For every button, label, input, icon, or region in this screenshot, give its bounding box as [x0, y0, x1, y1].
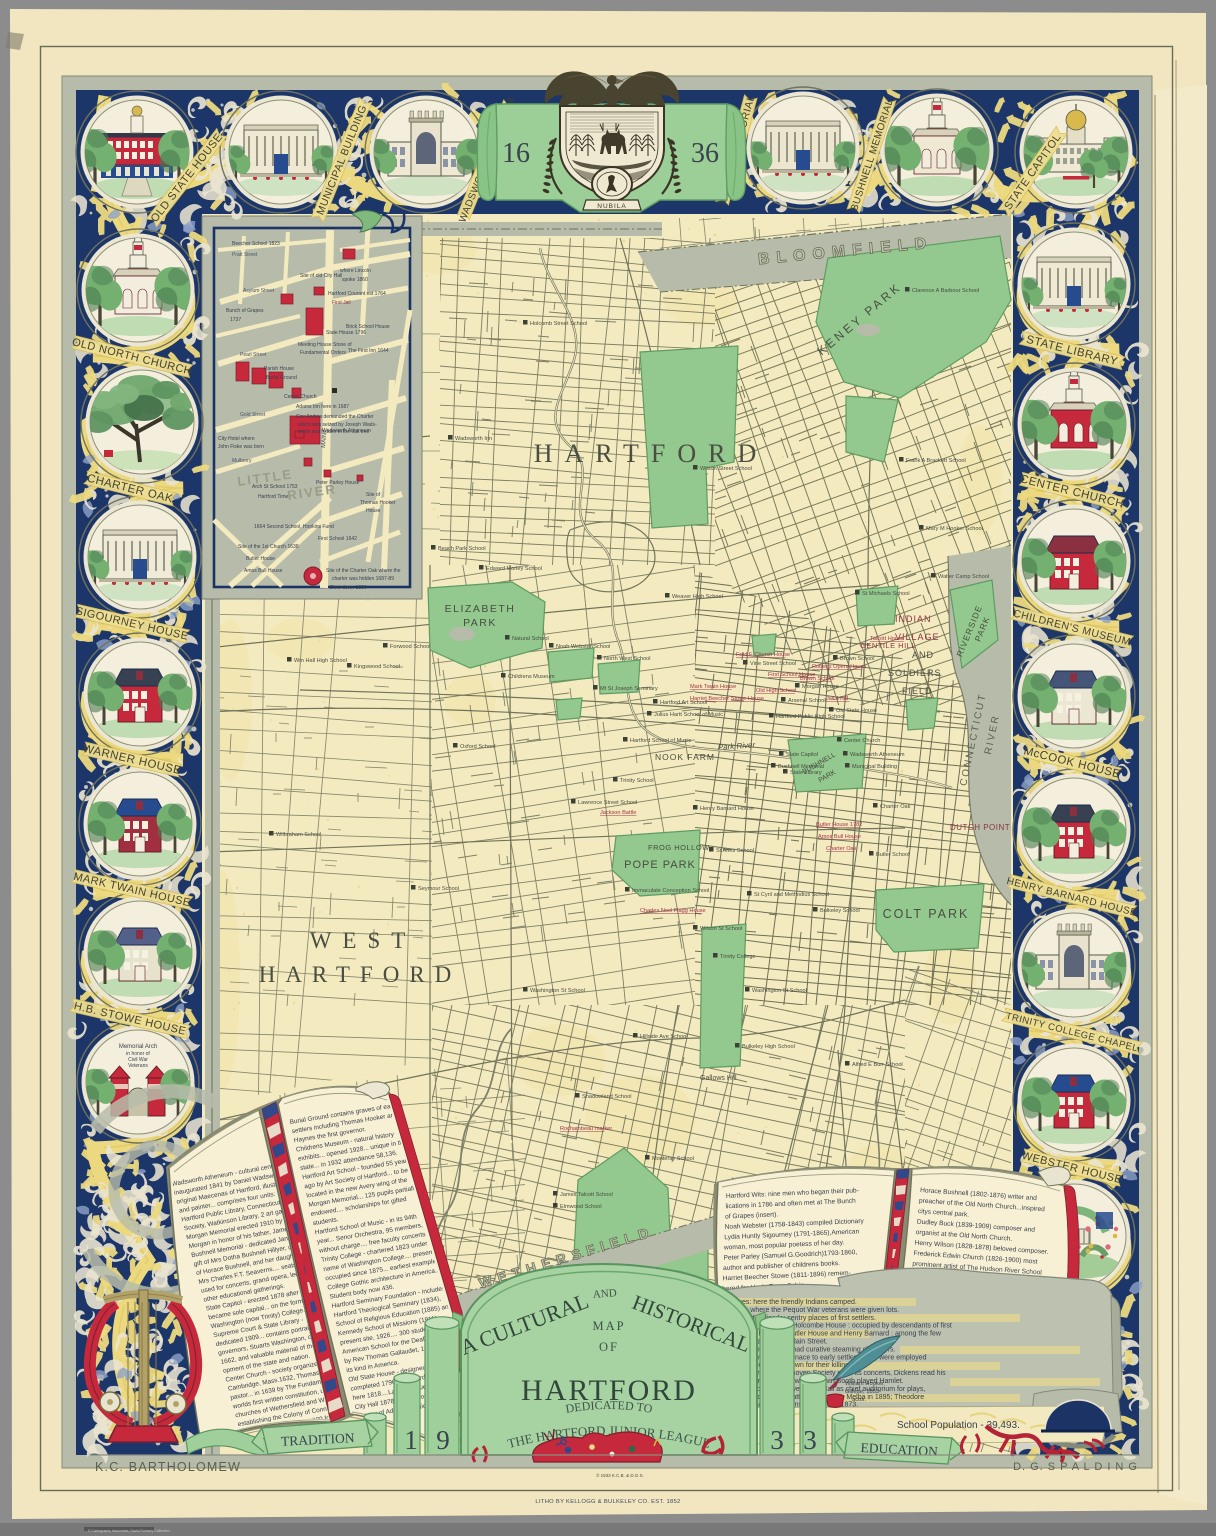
- svg-text:State Library: State Library: [790, 770, 822, 776]
- svg-text:Natural School: Natural School: [512, 636, 549, 642]
- svg-text:SOLDIERS: SOLDIERS: [888, 668, 942, 678]
- svg-text:FROG HOLLOW: FROG HOLLOW: [648, 843, 710, 852]
- svg-text:State Capitol: State Capitol: [786, 752, 818, 758]
- svg-text:Brown School: Brown School: [840, 656, 875, 662]
- svg-text:Beach Park School: Beach Park School: [438, 546, 486, 552]
- svg-text:Lawrence Street School: Lawrence Street School: [578, 800, 637, 806]
- svg-text:where Lincoln: where Lincoln: [340, 268, 371, 274]
- svg-text:Charles Noel Flagg House: Charles Noel Flagg House: [640, 908, 706, 914]
- svg-text:Oxford School: Oxford School: [460, 744, 495, 750]
- svg-text:Bulkeley High School: Bulkeley High School: [742, 1044, 795, 1050]
- svg-text:Fundamental Orders: Fundamental Orders: [300, 350, 346, 356]
- svg-text:Vine Street School: Vine Street School: [750, 661, 796, 667]
- svg-text:LITHO BY KELLOGG & BULKELE: LITHO BY KELLOGG & BULKELEY CO. EST. 185…: [535, 1499, 680, 1505]
- svg-text:1: 1: [404, 1425, 418, 1455]
- svg-text:3: 3: [803, 1425, 817, 1455]
- svg-text:First School 1642: First School 1642: [318, 536, 357, 542]
- svg-text:Morgan House: Morgan House: [802, 684, 839, 690]
- svg-text:First School House: First School House: [768, 672, 815, 678]
- svg-text:Rochambeau marker: Rochambeau marker: [560, 1126, 612, 1132]
- svg-text:House: House: [366, 508, 381, 514]
- svg-text:Julius Hartt School of Music: Julius Hartt School of Music: [654, 712, 723, 718]
- svg-text:Kingswood School: Kingswood School: [354, 664, 400, 670]
- svg-text:St Michaels School: St Michaels School: [862, 591, 910, 597]
- svg-text:Pearl Street: Pearl Street: [240, 352, 267, 358]
- svg-text:Old High School: Old High School: [756, 688, 796, 694]
- svg-text:Weaver High School: Weaver High School: [672, 594, 723, 600]
- svg-text:Trinity College: Trinity College: [720, 954, 756, 960]
- svg-text:© 1933 K.C.B. & D.G.S.: © 1933 K.C.B. & D.G.S.: [596, 1472, 644, 1478]
- svg-text:3: 3: [770, 1425, 784, 1455]
- svg-text:Blew down 1856: Blew down 1856: [330, 585, 367, 591]
- svg-text:Shadowland School: Shadowland School: [582, 1094, 631, 1100]
- svg-text:Municipal Building: Municipal Building: [852, 764, 897, 770]
- svg-text:Wilson St School: Wilson St School: [700, 926, 742, 932]
- svg-text:AND: AND: [592, 1287, 617, 1301]
- svg-text:Burial Ground: Burial Ground: [266, 375, 297, 381]
- svg-text:Adams Inn here in 1687: Adams Inn here in 1687: [296, 404, 349, 410]
- svg-text:Washington St School: Washington St School: [530, 988, 585, 994]
- svg-text:Center Church: Center Church: [284, 394, 317, 400]
- svg-text:The First Inn 1644: The First Inn 1644: [348, 348, 389, 354]
- svg-text:James Talcott School: James Talcott School: [560, 1192, 613, 1198]
- svg-text:Old State House: Old State House: [836, 708, 877, 714]
- svg-text:1737: 1737: [230, 317, 241, 323]
- svg-text:© Cartography Associates, Davi: © Cartography Associates, David Rumsey C…: [88, 1529, 170, 1533]
- svg-text:John Fiske was born: John Fiske was born: [218, 444, 264, 450]
- svg-text:Noah Webster School: Noah Webster School: [556, 644, 610, 650]
- svg-text:actor.: actor.: [852, 1397, 867, 1403]
- svg-text:Beecher School 1823: Beecher School 1823: [232, 241, 280, 247]
- svg-text:WEST: WEST: [310, 928, 417, 953]
- svg-text:Hartford Public High School: Hartford Public High School: [776, 714, 845, 720]
- svg-text:INDIAN: INDIAN: [895, 614, 932, 624]
- svg-text:Thomas Hooker: Thomas Hooker: [360, 500, 396, 506]
- svg-text:Bulkeley School: Bulkeley School: [820, 908, 860, 914]
- svg-text:Gallows Hill: Gallows Hill: [700, 1075, 737, 1082]
- svg-text:Gold Street: Gold Street: [240, 412, 266, 418]
- svg-text:Gov Andros demanded the Charte: Gov Andros demanded the Charter: [296, 414, 374, 420]
- svg-text:Charter Oak: Charter Oak: [880, 804, 911, 810]
- svg-text:Wm Hall High School: Wm Hall High School: [294, 658, 347, 664]
- svg-text:Holcomb Street School: Holcomb Street School: [530, 321, 587, 327]
- svg-text:POPE PARK: POPE PARK: [624, 859, 696, 871]
- svg-text:Harriet Beecher Stowe House: Harriet Beecher Stowe House: [690, 696, 764, 702]
- svg-text:Site of the 1st Church 1638: Site of the 1st Church 1638: [238, 544, 299, 550]
- svg-text:Butler House: Butler House: [246, 556, 275, 562]
- svg-text:City Hotel where: City Hotel where: [218, 436, 255, 442]
- svg-text:Washington St School: Washington St School: [752, 988, 807, 994]
- svg-text:Pratt Street: Pratt Street: [232, 252, 258, 258]
- svg-text:Butler House 1782: Butler House 1782: [816, 822, 862, 828]
- svg-text:First Jail: First Jail: [332, 300, 351, 306]
- svg-text:North West School: North West School: [604, 656, 651, 662]
- svg-text:MAP: MAP: [592, 1319, 625, 1333]
- svg-text:Mulberry: Mulberry: [232, 458, 252, 464]
- svg-text:Center Church: Center Church: [844, 738, 880, 744]
- svg-text:Amos Bull House: Amos Bull House: [818, 834, 861, 840]
- svg-text:DUTCH POINT: DUTCH POINT: [950, 823, 1010, 832]
- svg-text:Frank A Brackett School: Frank A Brackett School: [906, 458, 966, 464]
- svg-text:Wilbraham School: Wilbraham School: [276, 832, 321, 838]
- svg-text:Wadsworth Atheneum: Wadsworth Atheneum: [850, 752, 905, 758]
- svg-text:St Cyril and Methodius School: St Cyril and Methodius School: [754, 892, 829, 898]
- svg-text:Veterans: Veterans: [128, 1063, 148, 1069]
- svg-text:Roberts Opera House: Roberts Opera House: [812, 664, 866, 670]
- svg-text:36: 36: [691, 138, 719, 169]
- svg-text:Mt St Joseph Seminary: Mt St Joseph Seminary: [600, 686, 658, 692]
- svg-text:Talcott House: Talcott House: [870, 636, 904, 642]
- svg-text:NUBILA: NUBILA: [597, 203, 626, 210]
- svg-text:Jail 1793: Jail 1793: [826, 696, 848, 702]
- svg-text:Arsenal School: Arsenal School: [788, 698, 826, 704]
- svg-text:Walter Camp School: Walter Camp School: [938, 574, 989, 580]
- svg-text:HARTFORD: HARTFORD: [534, 439, 769, 468]
- svg-text:OF: OF: [599, 1340, 619, 1354]
- svg-text:School Population - 39,493.: School Population - 39,493.: [897, 1420, 1020, 1431]
- svg-text:NOOK FARM: NOOK FARM: [655, 752, 715, 762]
- svg-text:Asylum Street: Asylum Street: [243, 288, 275, 294]
- svg-text:Jackson Battle: Jackson Battle: [600, 810, 636, 816]
- svg-text:Immaculate Conception School: Immaculate Conception School: [632, 888, 709, 894]
- svg-text:Parish House: Parish House: [264, 366, 294, 372]
- svg-text:AND: AND: [912, 650, 934, 660]
- svg-text:COLT PARK: COLT PARK: [883, 907, 970, 921]
- svg-text:Elmwood School: Elmwood School: [560, 1204, 602, 1210]
- svg-text:Wadsworth Atheneum: Wadsworth Atheneum: [322, 428, 371, 434]
- svg-text:Clarence A Barbour School: Clarence A Barbour School: [912, 288, 979, 294]
- svg-text:William Hooker: William Hooker: [845, 1381, 884, 1387]
- svg-text:1664 Second School, Hopkins Fu: 1664 Second School, Hopkins Fund: [254, 524, 334, 530]
- svg-text:Site of old City Hall: Site of old City Hall: [300, 273, 342, 279]
- svg-text:Forwood School: Forwood School: [390, 644, 430, 650]
- svg-text:Meeting House Stone of: Meeting House Stone of: [298, 342, 352, 348]
- svg-text:St Anns School: St Anns School: [716, 848, 754, 854]
- svg-text:16: 16: [502, 138, 530, 169]
- svg-text:Wilson Street School: Wilson Street School: [700, 466, 752, 472]
- svg-text:Alfred E Burr School: Alfred E Burr School: [852, 1062, 903, 1068]
- svg-text:Hartford Courant est 1764: Hartford Courant est 1764: [328, 291, 386, 297]
- svg-text:Fred E Church House: Fred E Church House: [736, 652, 790, 658]
- svg-text:Hillside Ave School: Hillside Ave School: [640, 1034, 687, 1040]
- svg-text:Charter Oak: Charter Oak: [826, 846, 857, 852]
- svg-text:Site of: Site of: [366, 492, 381, 498]
- svg-text:GENTILE HILL: GENTILE HILL: [860, 641, 916, 650]
- svg-text:Mark Twain House: Mark Twain House: [690, 684, 736, 690]
- svg-text:Seymour School: Seymour School: [418, 886, 459, 892]
- svg-text:Childrens Museum: Childrens Museum: [508, 674, 555, 680]
- svg-text:K.C. BARTHOLOMEW: K.C. BARTHOLOMEW: [95, 1460, 241, 1474]
- svg-text:Amos Bull House: Amos Bull House: [244, 568, 283, 574]
- svg-text:D. G. S P A L D I N G: D. G. S P A L D I N G: [1013, 1461, 1138, 1473]
- svg-text:Wadsworth Inn: Wadsworth Inn: [455, 436, 492, 442]
- svg-text:State House 1796: State House 1796: [326, 330, 366, 336]
- svg-text:HARTFORD: HARTFORD: [259, 962, 462, 987]
- svg-text:ELIZABETH: ELIZABETH: [445, 603, 516, 615]
- svg-text:Butler School: Butler School: [876, 852, 909, 858]
- svg-text:Edward Morley School: Edward Morley School: [486, 566, 542, 572]
- svg-text:Hartford School of Music: Hartford School of Music: [630, 738, 691, 744]
- svg-text:Trinity School: Trinity School: [620, 778, 654, 784]
- svg-text:Memorial Arch: Memorial Arch: [119, 1044, 157, 1050]
- svg-text:charter was hidden 1687-89: charter was hidden 1687-89: [332, 576, 394, 582]
- svg-text:Henry Barnard House: Henry Barnard House: [700, 806, 754, 812]
- svg-text:9: 9: [436, 1425, 450, 1455]
- svg-text:PARK: PARK: [463, 617, 497, 629]
- svg-text:Site of the Charter Oak where: Site of the Charter Oak where the: [326, 568, 401, 574]
- svg-text:Mary M Hooker School: Mary M Hooker School: [926, 526, 983, 532]
- svg-text:Monteray School: Monteray School: [652, 1156, 694, 1162]
- svg-text:spoke 1860: spoke 1860: [342, 277, 368, 283]
- svg-text:Bushnell Memorial: Bushnell Memorial: [778, 764, 824, 770]
- svg-text:FIELD: FIELD: [902, 686, 933, 696]
- svg-text:Gillette, 1853-: Gillette, 1853-: [845, 1389, 881, 1395]
- svg-text:Bunch of Grapes: Bunch of Grapes: [226, 308, 264, 314]
